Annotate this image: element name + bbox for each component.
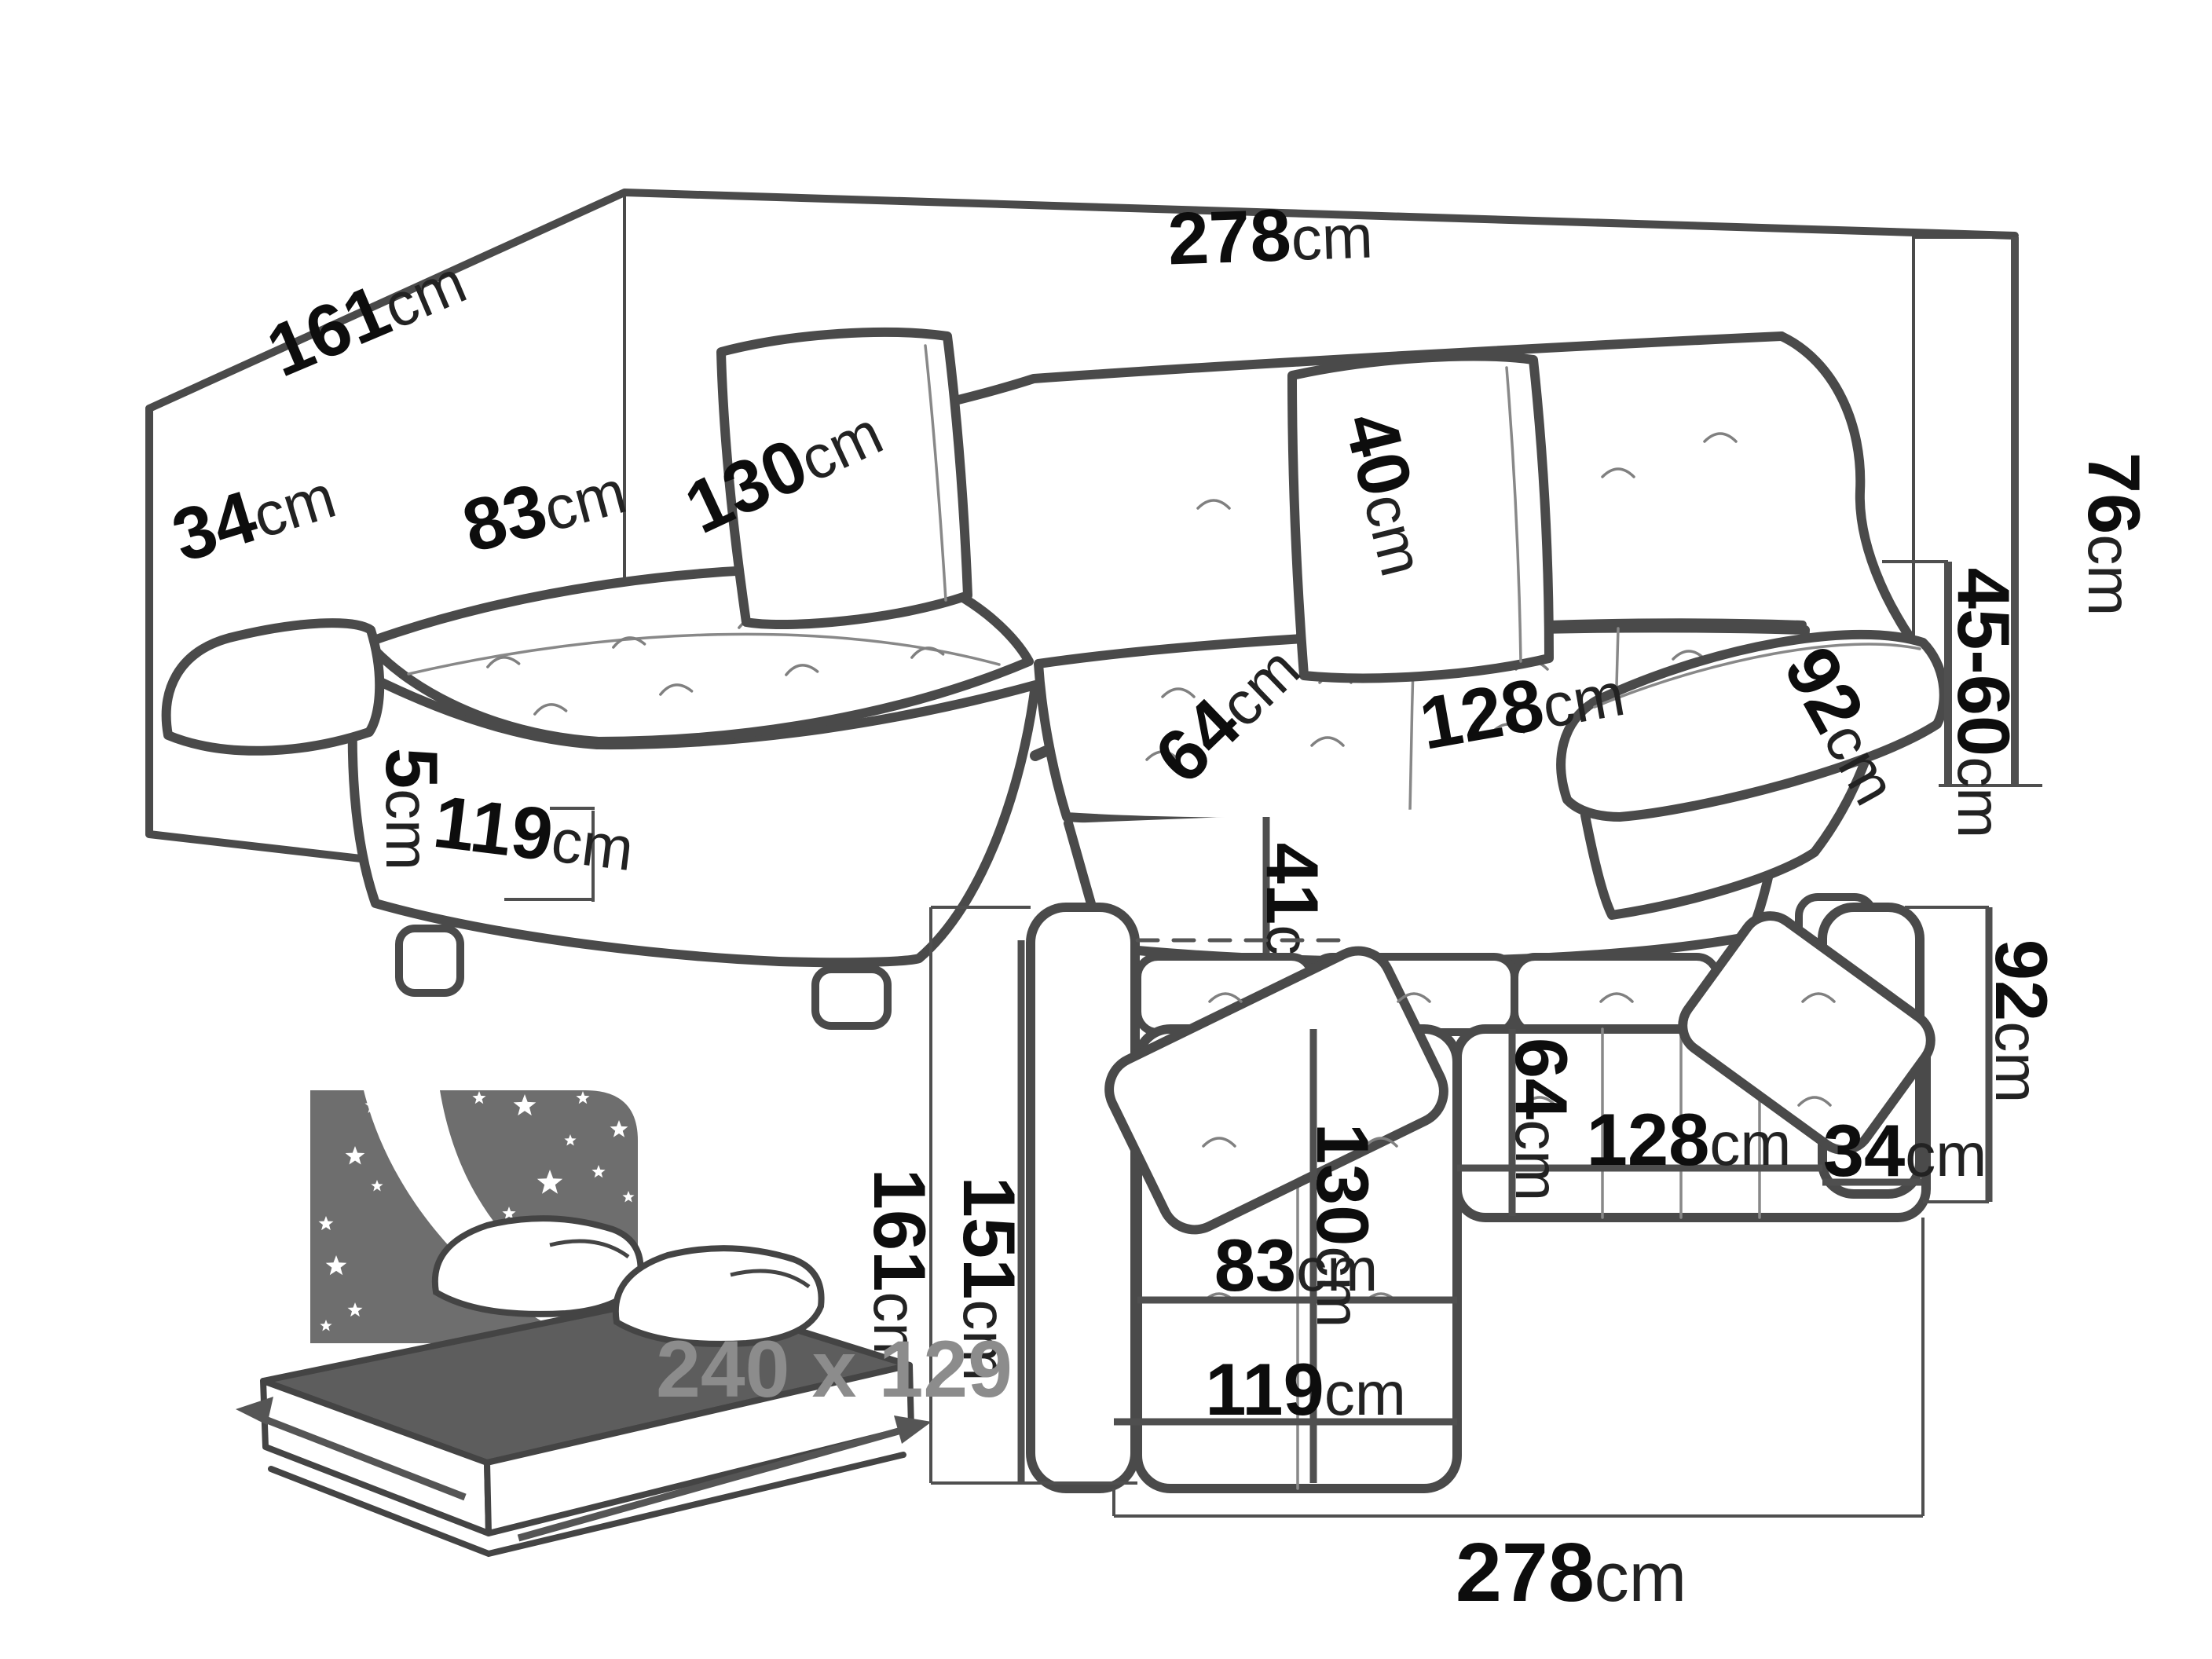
top-view: 161cm 151cm 130cm 64cm 83cm 128cm 34cm 9… bbox=[859, 905, 2063, 1619]
tv-left-armrest bbox=[1031, 907, 1135, 1489]
diagram-canvas: 161cm 278cm 34cm 83cm 130cm 40cm 64cm 12… bbox=[0, 0, 2212, 1659]
chaise-right-leg bbox=[815, 969, 888, 1026]
chaise-left-leg bbox=[399, 928, 460, 993]
top-view-sofa bbox=[1031, 905, 1942, 1489]
tv-chaise-seat-width-label: 83cm bbox=[1214, 1224, 1379, 1306]
left-armrest bbox=[167, 623, 379, 751]
tv-seat-width-label: 128cm bbox=[1587, 1098, 1792, 1181]
pv-side-depth-label: 161cm bbox=[255, 236, 476, 393]
pv-left-armrest-width-label: 34cm bbox=[163, 451, 344, 577]
tv-seat-depth-label: 64cm bbox=[1500, 1038, 1583, 1202]
backrest-right-edge bbox=[1782, 336, 1931, 665]
tv-chaise-width-label: 119cm bbox=[1205, 1348, 1406, 1430]
tv-total-width-label: 278cm bbox=[1456, 1526, 1686, 1619]
bed-width-arrowhead-icon bbox=[236, 1397, 273, 1425]
bed-pillow-left bbox=[435, 1218, 641, 1314]
pv-chaise-seat-width-label: 83cm bbox=[454, 446, 634, 568]
bed-size-label: 240 x 129 bbox=[656, 1324, 1013, 1414]
tv-armrest-width-label: 34cm bbox=[1823, 1109, 1987, 1192]
pv-back-width-label: 278cm bbox=[1166, 190, 1374, 280]
pv-armrest-height-label: 45-60cm bbox=[1943, 568, 2025, 838]
bed-length-arrowhead-icon bbox=[894, 1415, 932, 1444]
pv-total-height-label: 76cm bbox=[2073, 452, 2155, 617]
tv-armrest-depth-label: 92cm bbox=[1980, 939, 2063, 1104]
